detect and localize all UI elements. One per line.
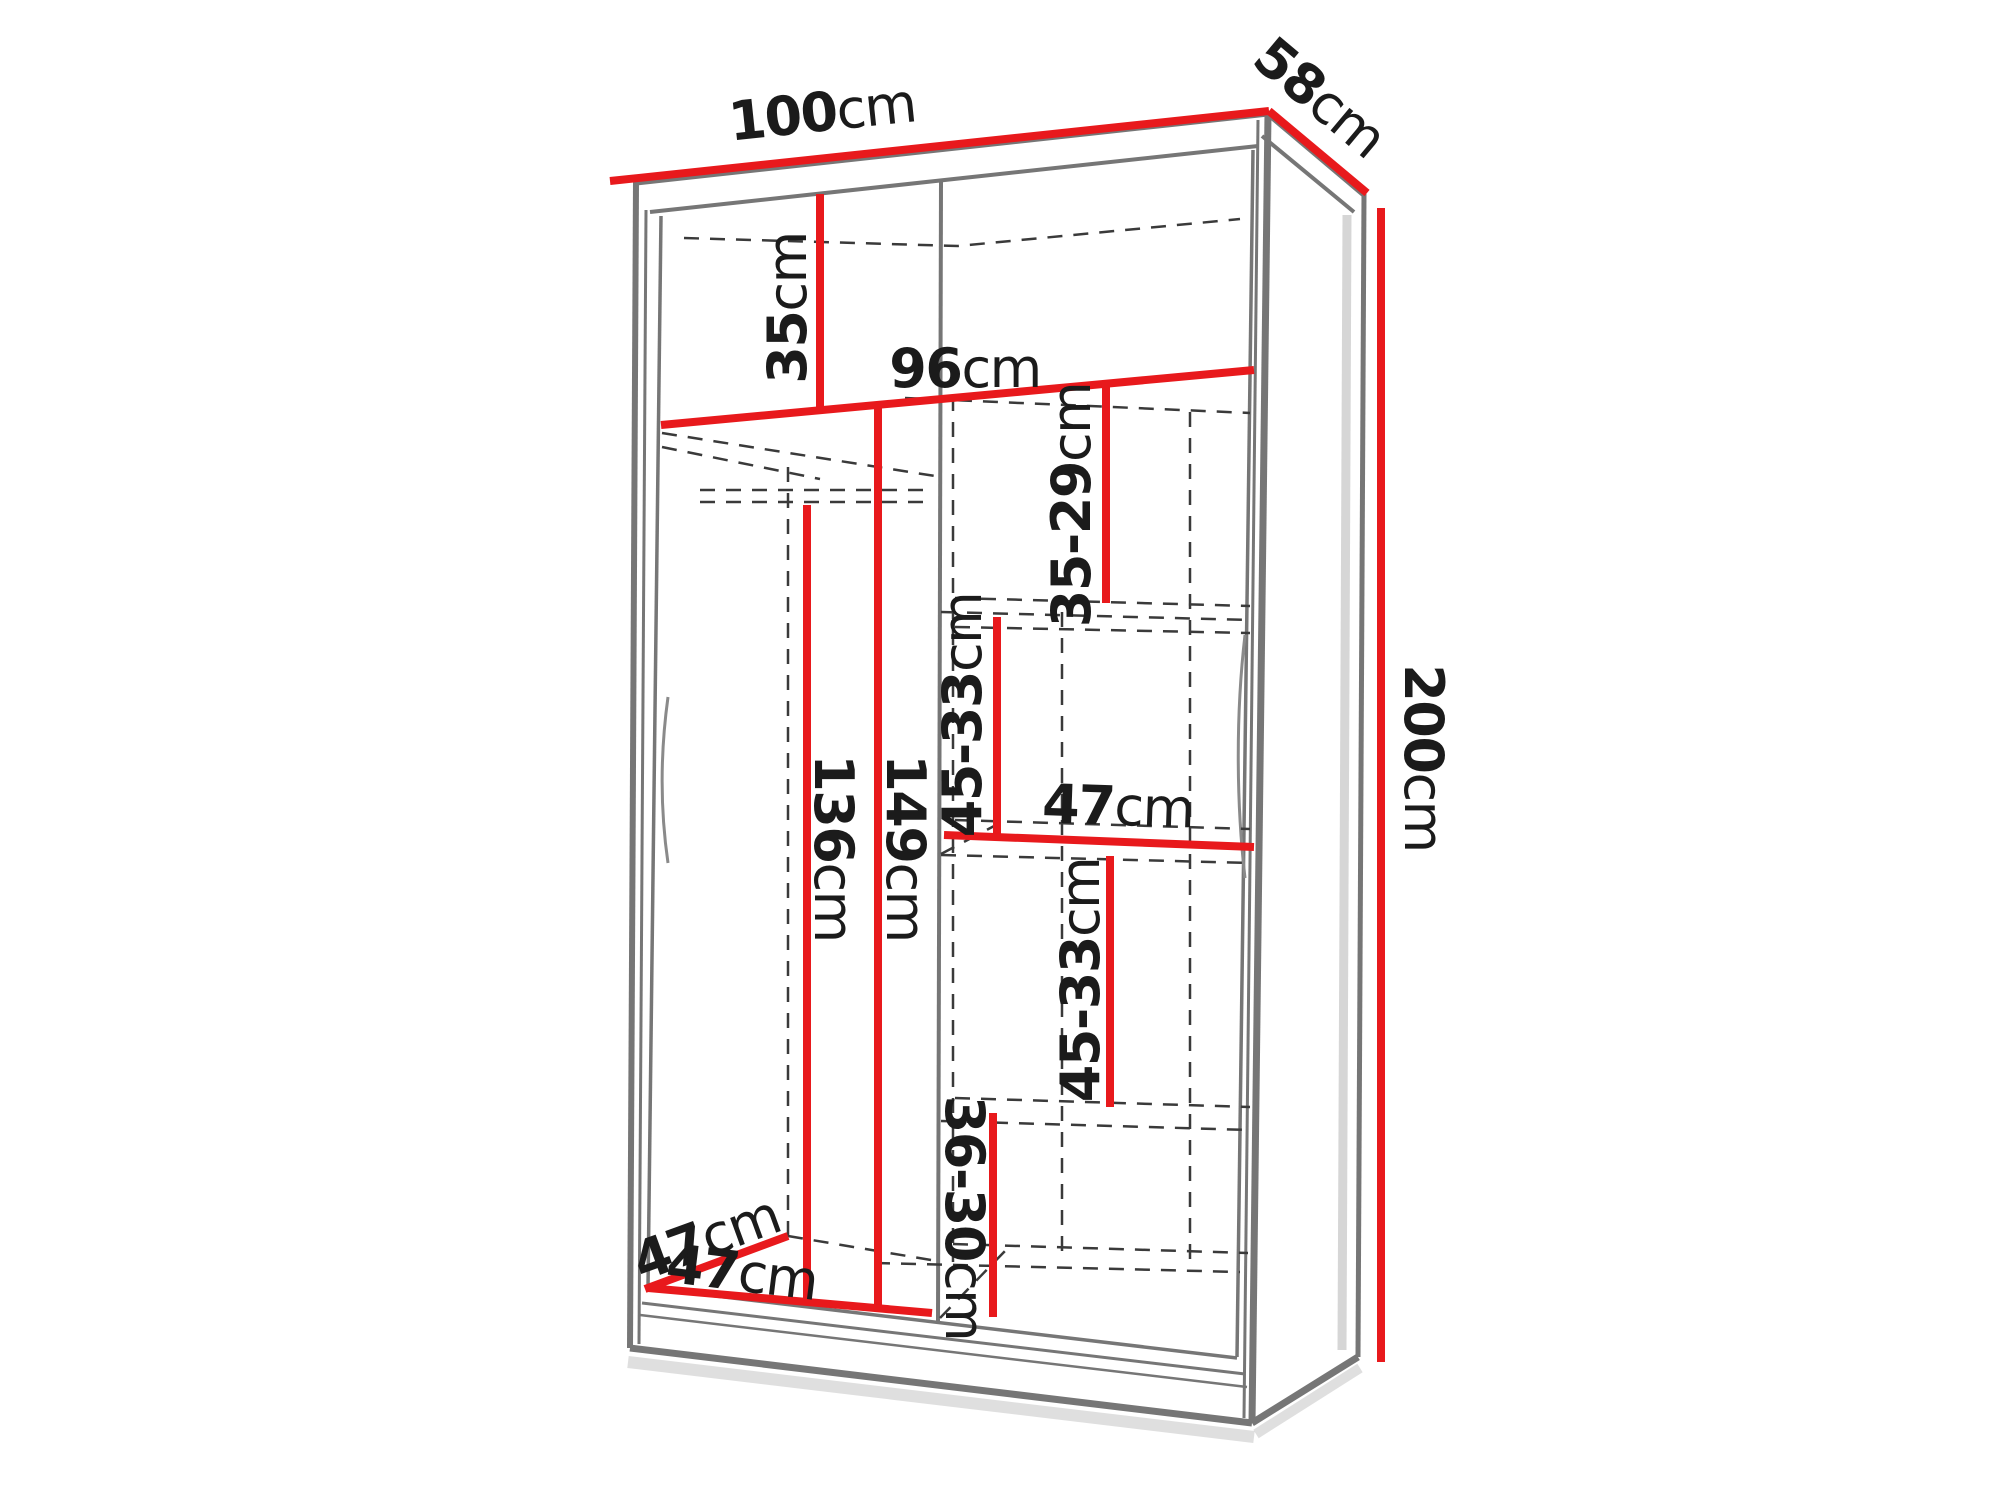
diagram-canvas: 100cm 58cm 200cm 35cm 96cm 35-29cm 45-33… bbox=[0, 0, 2000, 1500]
dim-label-hanging-front: 136cm bbox=[802, 754, 865, 942]
dim-label-height-side: 200cm bbox=[1392, 664, 1455, 852]
left-door-handle bbox=[662, 697, 668, 863]
dim-label-right-gap-3: 45-33cm bbox=[1049, 858, 1112, 1103]
dim-line-width-top bbox=[610, 111, 1269, 181]
wardrobe-dimension-diagram: 100cm 58cm 200cm 35cm 96cm 35-29cm 45-33… bbox=[0, 0, 2000, 1500]
dim-label-bottom-width: 47cm bbox=[663, 1232, 821, 1313]
dim-label-right-gap-2: 45-33cm bbox=[931, 593, 994, 838]
dim-label-interior-width: 96cm bbox=[889, 337, 1040, 400]
dim-label-top-shelf: 35cm bbox=[756, 232, 819, 383]
dim-label-hanging-back: 149cm bbox=[874, 754, 937, 942]
dimension-labels: 100cm 58cm 200cm 35cm 96cm 35-29cm 45-33… bbox=[624, 24, 1455, 1340]
dim-label-right-gap-4: 36-30cm bbox=[933, 1096, 996, 1341]
dim-label-right-gap-1: 35-29cm bbox=[1040, 383, 1103, 628]
dim-label-width-top: 100cm bbox=[725, 71, 918, 153]
dim-label-middle-shelf-depth: 47cm bbox=[1041, 772, 1195, 840]
